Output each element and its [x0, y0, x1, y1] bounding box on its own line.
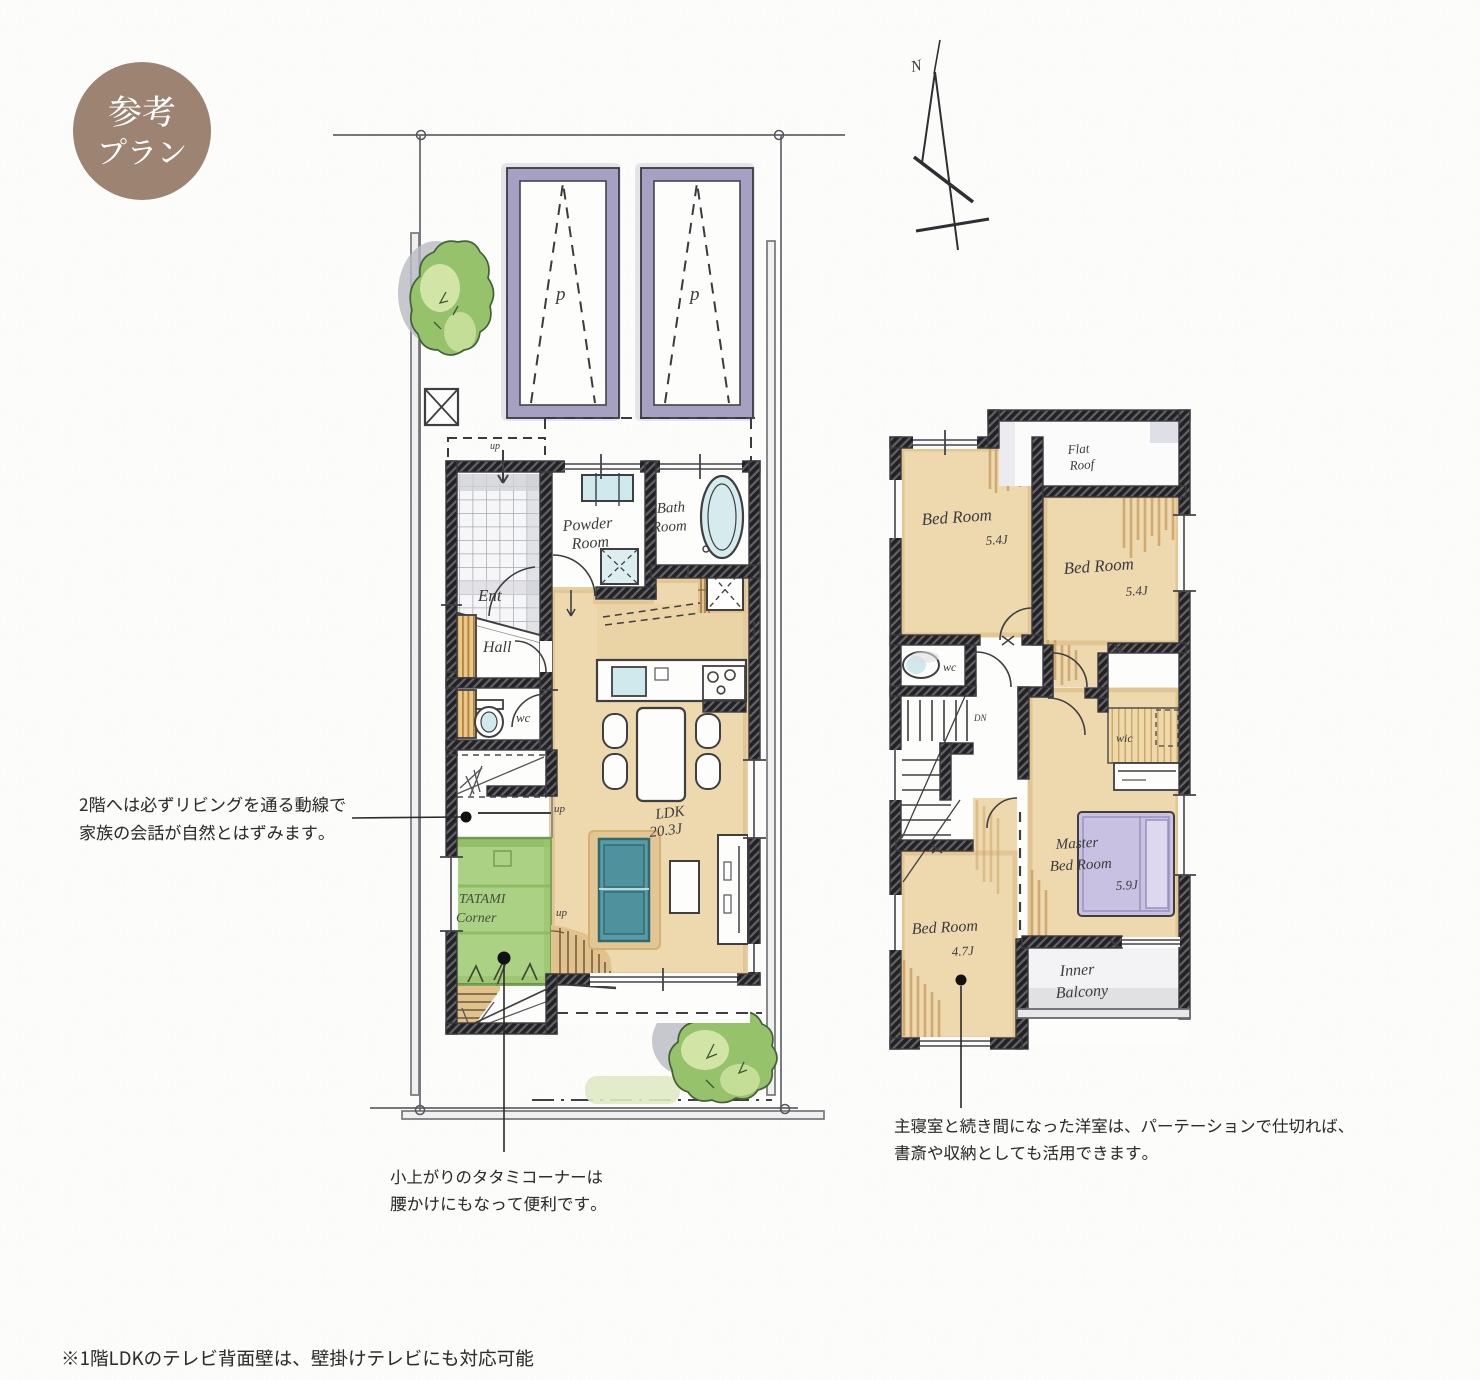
svg-text:5.9J: 5.9J — [1115, 877, 1139, 893]
svg-text:p: p — [554, 284, 566, 305]
svg-text:Hall: Hall — [482, 639, 512, 656]
svg-text:Room: Room — [650, 518, 687, 536]
svg-text:up: up — [554, 803, 566, 815]
svg-text:Bath: Bath — [656, 500, 685, 517]
svg-text:wc: wc — [943, 660, 957, 674]
svg-text:Flat: Flat — [1066, 440, 1090, 457]
svg-text:Powder: Powder — [561, 515, 614, 536]
svg-text:Bed Room: Bed Room — [1049, 856, 1112, 875]
svg-text:wic: wic — [1116, 731, 1133, 745]
svg-text:Inner: Inner — [1058, 961, 1095, 980]
svg-text:wc: wc — [516, 710, 531, 725]
svg-text:TATAMI: TATAMI — [459, 892, 507, 907]
svg-text:DN: DN — [973, 713, 987, 723]
svg-text:4.7J: 4.7J — [951, 943, 975, 959]
svg-text:up: up — [556, 907, 568, 919]
svg-text:Room: Room — [570, 533, 609, 553]
svg-text:up: up — [490, 441, 500, 452]
svg-text:Ent: Ent — [477, 586, 503, 605]
svg-text:Balcony: Balcony — [1055, 982, 1109, 1002]
svg-text:5.4J: 5.4J — [985, 531, 1009, 548]
svg-text:p: p — [688, 284, 700, 305]
svg-text:Bed Room: Bed Room — [911, 918, 978, 938]
svg-text:Corner: Corner — [456, 911, 497, 926]
svg-text:Roof: Roof — [1068, 456, 1097, 473]
svg-text:Master: Master — [1054, 835, 1098, 853]
svg-text:5.4J: 5.4J — [1125, 582, 1149, 599]
